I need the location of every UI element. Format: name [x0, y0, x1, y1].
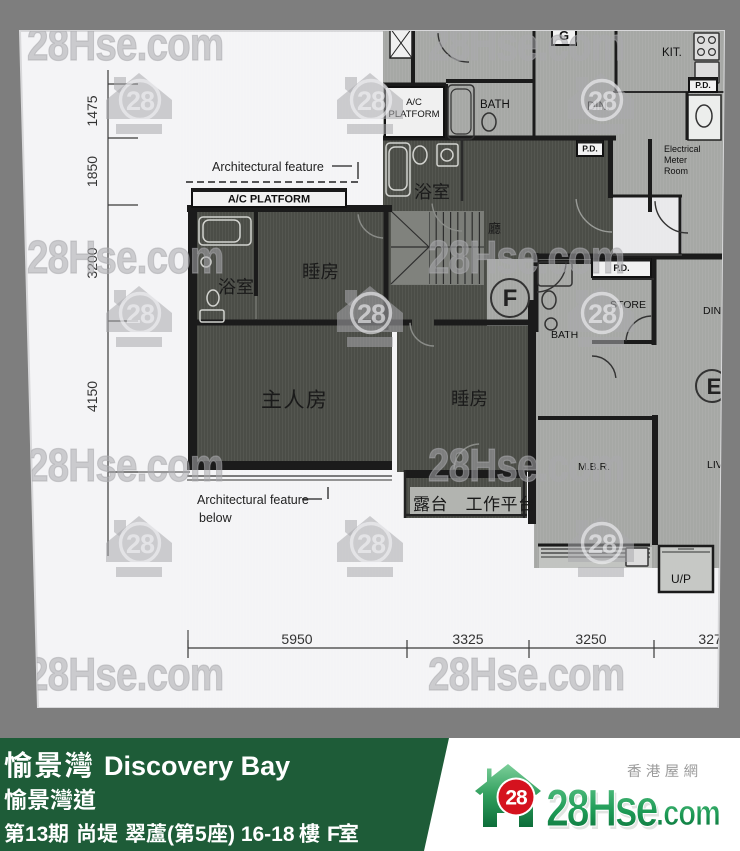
svg-text:4150: 4150 — [84, 381, 100, 412]
svg-text:28Hse: 28Hse — [546, 779, 657, 838]
svg-text:U/P: U/P — [671, 572, 691, 586]
svg-text:28Hse.com: 28Hse.com — [428, 232, 624, 283]
svg-text:28: 28 — [588, 529, 617, 559]
svg-text:KIT.: KIT. — [662, 47, 682, 59]
svg-text:28: 28 — [126, 299, 155, 329]
svg-text:3325: 3325 — [452, 631, 483, 647]
svg-text:A/C PLATFORM: A/C PLATFORM — [228, 194, 310, 206]
svg-text:E: E — [707, 374, 722, 399]
svg-text:28Hse.com: 28Hse.com — [27, 232, 223, 283]
svg-text:F: F — [503, 285, 518, 312]
svg-text:Architectural feature: Architectural feature — [212, 160, 324, 174]
svg-text:1475: 1475 — [84, 95, 100, 126]
svg-text:A/C: A/C — [406, 97, 422, 108]
svg-text:28Hse.com: 28Hse.com — [428, 440, 624, 491]
svg-text:3250: 3250 — [575, 631, 606, 647]
svg-text:28: 28 — [357, 86, 386, 116]
svg-text:13: 13 — [25, 823, 48, 846]
svg-text:Room: Room — [664, 166, 688, 176]
svg-text:1850: 1850 — [84, 156, 100, 187]
svg-text:28Hse.com: 28Hse.com — [27, 440, 223, 491]
svg-text:BATH: BATH — [480, 99, 510, 111]
svg-text:28Hse.com: 28Hse.com — [27, 649, 223, 700]
svg-text:Discovery Bay: Discovery Bay — [104, 751, 290, 781]
svg-text:Architectural feature: Architectural feature — [197, 493, 309, 507]
svg-text:28: 28 — [126, 529, 155, 559]
svg-text:DIN: DIN — [703, 305, 721, 317]
svg-text:below: below — [199, 511, 233, 525]
svg-text:.com: .com — [656, 792, 720, 833]
svg-text:) 16-18: ) 16-18 — [228, 823, 295, 846]
svg-text:28: 28 — [357, 299, 386, 329]
svg-text:5: 5 — [195, 823, 207, 846]
svg-text:28Hse.com: 28Hse.com — [428, 649, 624, 700]
svg-text:P.D.: P.D. — [582, 144, 597, 154]
svg-text:28: 28 — [505, 787, 528, 810]
svg-text:28: 28 — [357, 529, 386, 559]
svg-text:28: 28 — [126, 86, 155, 116]
svg-text:P.D.: P.D. — [695, 80, 710, 90]
svg-text:Meter: Meter — [664, 155, 687, 165]
svg-text:(: ( — [167, 823, 174, 846]
svg-text:28: 28 — [588, 86, 617, 116]
svg-text:28: 28 — [588, 299, 617, 329]
svg-text:Electrical: Electrical — [664, 144, 701, 154]
svg-text:5950: 5950 — [281, 631, 312, 647]
svg-text:F: F — [327, 823, 340, 846]
